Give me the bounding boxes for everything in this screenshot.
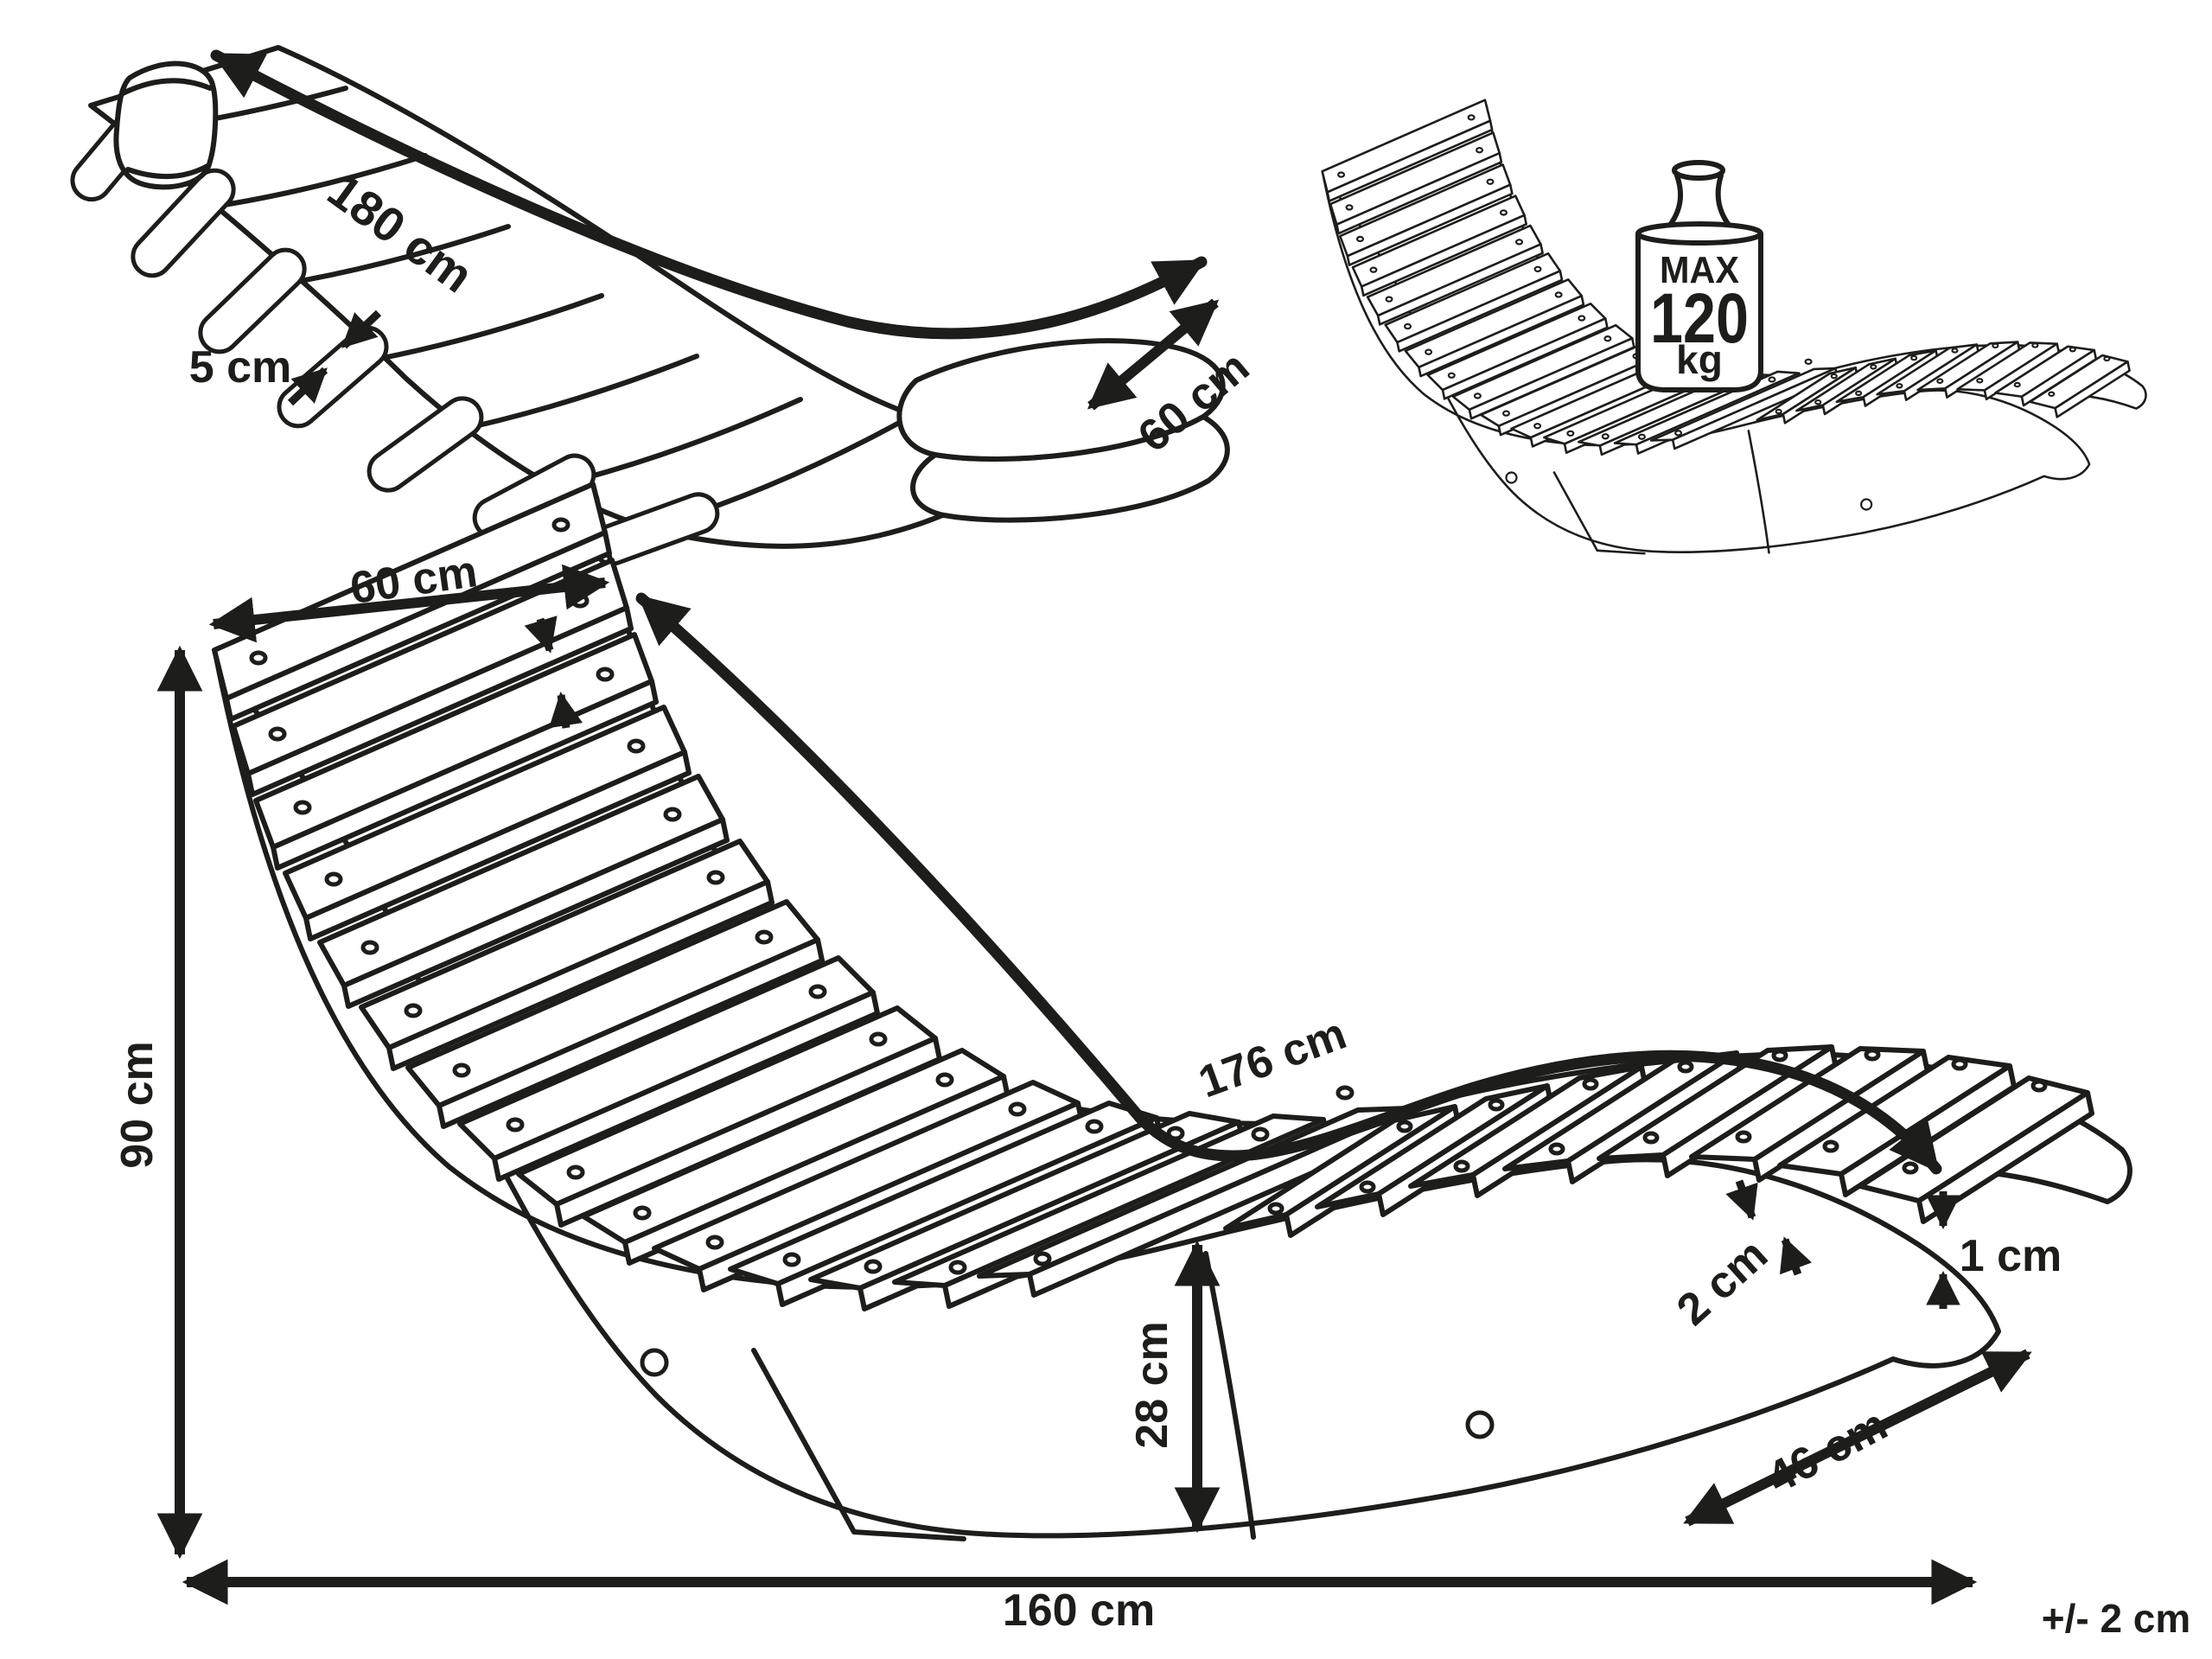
label-seat-height: 28 cm [1127, 1321, 1177, 1448]
label-slat-thickness: 1 cm [1960, 1231, 2062, 1281]
label-foot-width: 46 cm [1759, 1400, 1895, 1503]
label-height: 90 cm [112, 1041, 163, 1168]
label-total-length: 160 cm [1003, 1586, 1155, 1636]
dimension-view: 60 cm 90 cm 176 cm 28 cm 2 cm 1 cm 46 cm… [112, 484, 2190, 1641]
label-cushion-thickness: 5 cm [189, 342, 292, 392]
cushion-lounger-view: 180 cm 5 cm 60 cm [65, 48, 1259, 569]
weight-icon: MAX 120 kg [1638, 163, 1761, 390]
max-load-view: MAX 120 kg [1323, 100, 2146, 554]
headrest-pillow [116, 64, 215, 188]
arrow-gap-top-up [561, 695, 566, 728]
label-max-unit: kg [1676, 337, 1723, 382]
label-tolerance: +/- 2 cm [2042, 1596, 2191, 1641]
diagram-page: 180 cm 5 cm 60 cm MAX 120 kg 60 cm [0, 0, 2212, 1659]
label-lying-surface: 176 cm [1192, 1009, 1353, 1108]
